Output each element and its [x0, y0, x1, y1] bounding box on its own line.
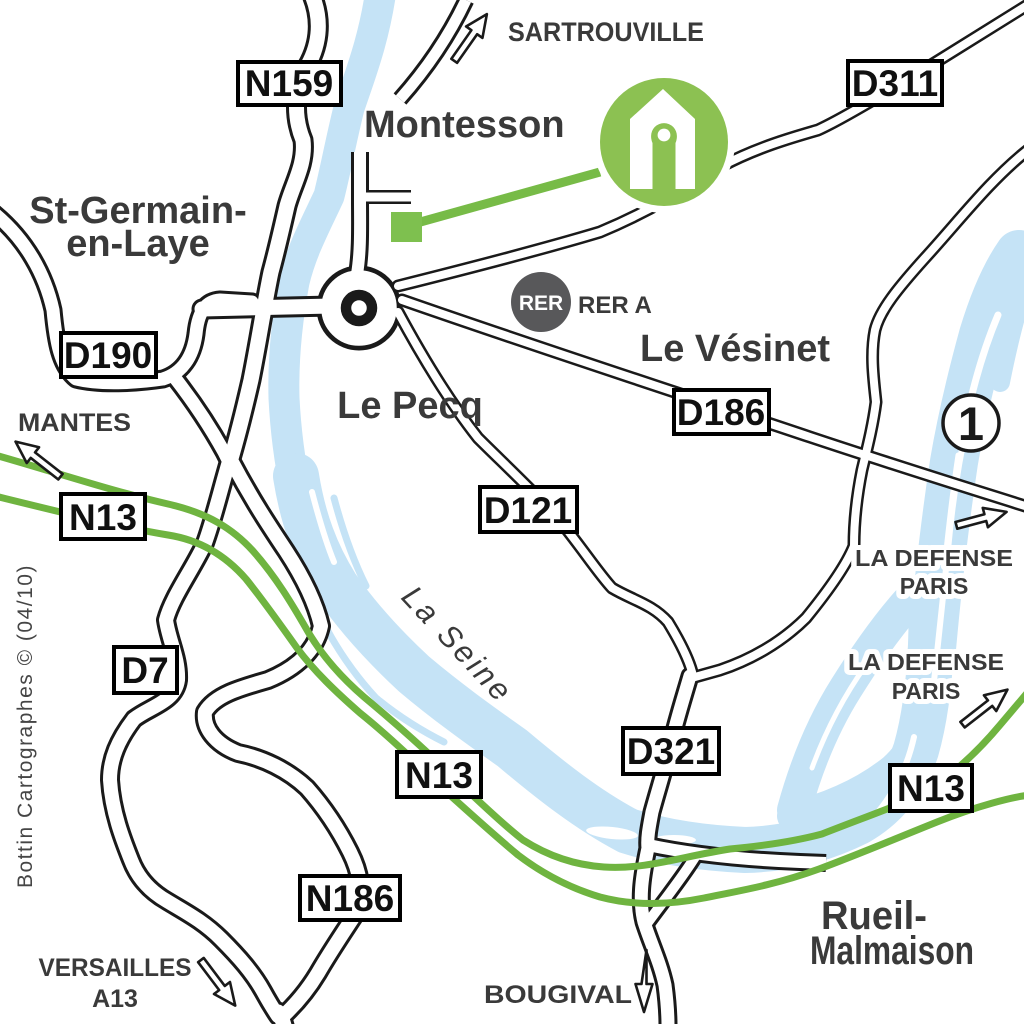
svg-text:Montesson: Montesson — [364, 104, 565, 146]
svg-text:N159: N159 — [245, 63, 333, 104]
svg-text:N13: N13 — [405, 755, 473, 796]
svg-text:N186: N186 — [306, 878, 394, 919]
svg-text:A13: A13 — [92, 985, 138, 1013]
svg-text:RER: RER — [519, 292, 563, 315]
svg-text:D186: D186 — [677, 392, 765, 433]
svg-text:RER A: RER A — [578, 292, 652, 319]
svg-text:BOUGIVAL: BOUGIVAL — [484, 981, 632, 1009]
svg-text:1: 1 — [958, 397, 984, 450]
svg-text:PARIS: PARIS — [892, 678, 961, 704]
svg-text:Bottin Cartographes © (04/10): Bottin Cartographes © (04/10) — [14, 564, 37, 888]
svg-text:Le Vésinet: Le Vésinet — [640, 328, 830, 370]
svg-text:en-Laye: en-Laye — [66, 223, 210, 265]
svg-text:LA DEFENSE: LA DEFENSE — [848, 649, 1004, 675]
svg-text:Le Pecq: Le Pecq — [337, 385, 483, 427]
svg-text:PARIS: PARIS — [900, 573, 969, 599]
svg-text:VERSAILLES: VERSAILLES — [39, 954, 192, 982]
svg-text:N13: N13 — [897, 768, 965, 809]
svg-text:D311: D311 — [852, 63, 938, 104]
svg-text:Malmaison: Malmaison — [810, 929, 974, 973]
svg-text:SARTROUVILLE: SARTROUVILLE — [508, 17, 704, 47]
svg-text:D321: D321 — [627, 731, 715, 772]
svg-text:D7: D7 — [121, 650, 168, 691]
svg-text:D190: D190 — [64, 335, 152, 376]
svg-text:LA DEFENSE: LA DEFENSE — [855, 545, 1013, 571]
svg-text:N13: N13 — [69, 497, 137, 538]
svg-text:MANTES: MANTES — [18, 409, 131, 437]
svg-text:D121: D121 — [484, 490, 572, 531]
